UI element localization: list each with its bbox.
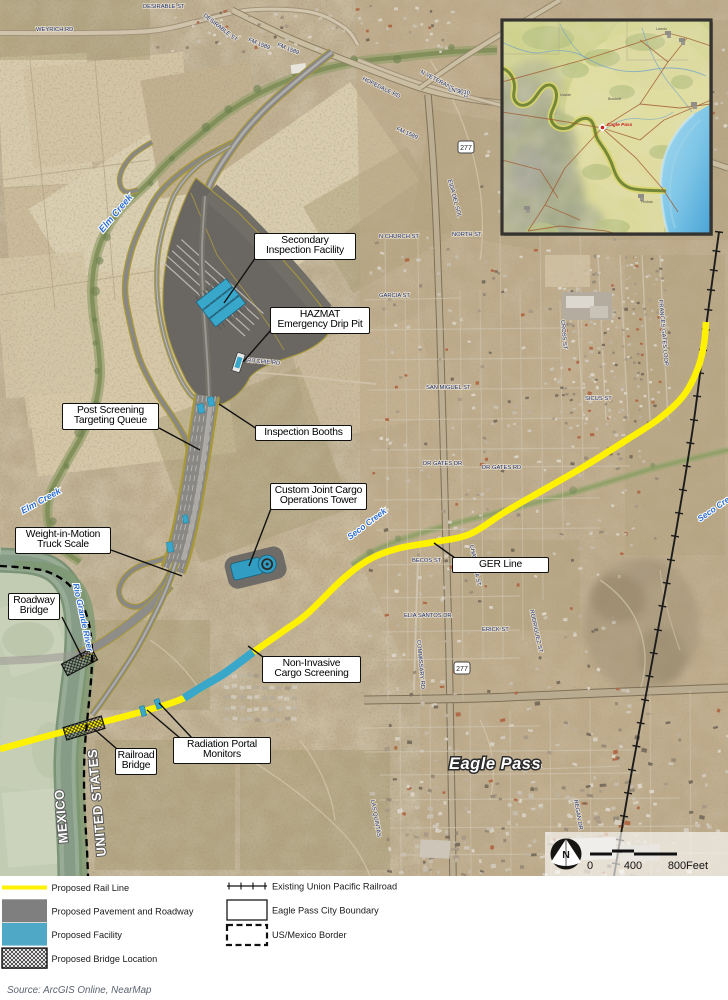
svg-text:800: 800 xyxy=(668,860,686,872)
svg-text:GARCIA ST: GARCIA ST xyxy=(379,293,410,299)
svg-text:Laredo: Laredo xyxy=(656,27,667,31)
svg-text:NORTH ST: NORTH ST xyxy=(452,232,482,238)
svg-text:N CHURCH ST: N CHURCH ST xyxy=(379,234,419,240)
svg-text:Feet: Feet xyxy=(686,860,708,872)
svg-text:WEYRICH RD: WEYRICH RD xyxy=(36,27,73,33)
svg-text:Eagle Pass: Eagle Pass xyxy=(449,755,541,773)
svg-text:Eagle Pass City Boundary: Eagle Pass City Boundary xyxy=(272,906,379,916)
svg-text:Brackett: Brackett xyxy=(608,97,621,101)
svg-text:0: 0 xyxy=(587,860,593,872)
svg-text:Uvalde: Uvalde xyxy=(560,93,571,97)
svg-text:Proposed Bridge Location: Proposed Bridge Location xyxy=(52,954,158,964)
svg-text:SICUS ST: SICUS ST xyxy=(585,396,612,402)
svg-text:SAN MIGUEL ST: SAN MIGUEL ST xyxy=(426,385,471,391)
svg-text:Source: ArcGIS Online, NearMap: Source: ArcGIS Online, NearMap xyxy=(7,985,152,996)
svg-text:ERICK ST: ERICK ST xyxy=(482,627,509,633)
svg-text:277: 277 xyxy=(460,145,472,152)
svg-text:Piedras: Piedras xyxy=(641,200,653,204)
svg-text:N: N xyxy=(562,849,570,861)
svg-text:400: 400 xyxy=(624,860,642,872)
svg-text:Eagle Pass: Eagle Pass xyxy=(607,122,633,128)
svg-text:DR GATES RD: DR GATES RD xyxy=(482,465,521,471)
svg-text:Existing Union Pacific Railroa: Existing Union Pacific Railroad xyxy=(272,882,397,892)
svg-text:Proposed Facility: Proposed Facility xyxy=(52,930,123,940)
svg-text:DR GATES DR: DR GATES DR xyxy=(423,461,462,467)
svg-text:ELIA SANTOS DR: ELIA SANTOS DR xyxy=(404,613,452,619)
svg-text:DESIRABLE ST: DESIRABLE ST xyxy=(143,4,185,10)
svg-text:BECOS ST: BECOS ST xyxy=(412,558,442,564)
svg-text:Proposed Pavement and Roadway: Proposed Pavement and Roadway xyxy=(52,907,194,917)
svg-text:277: 277 xyxy=(456,666,468,673)
svg-text:US/Mexico Border: US/Mexico Border xyxy=(272,930,347,940)
svg-text:Proposed Rail Line: Proposed Rail Line xyxy=(52,883,130,893)
